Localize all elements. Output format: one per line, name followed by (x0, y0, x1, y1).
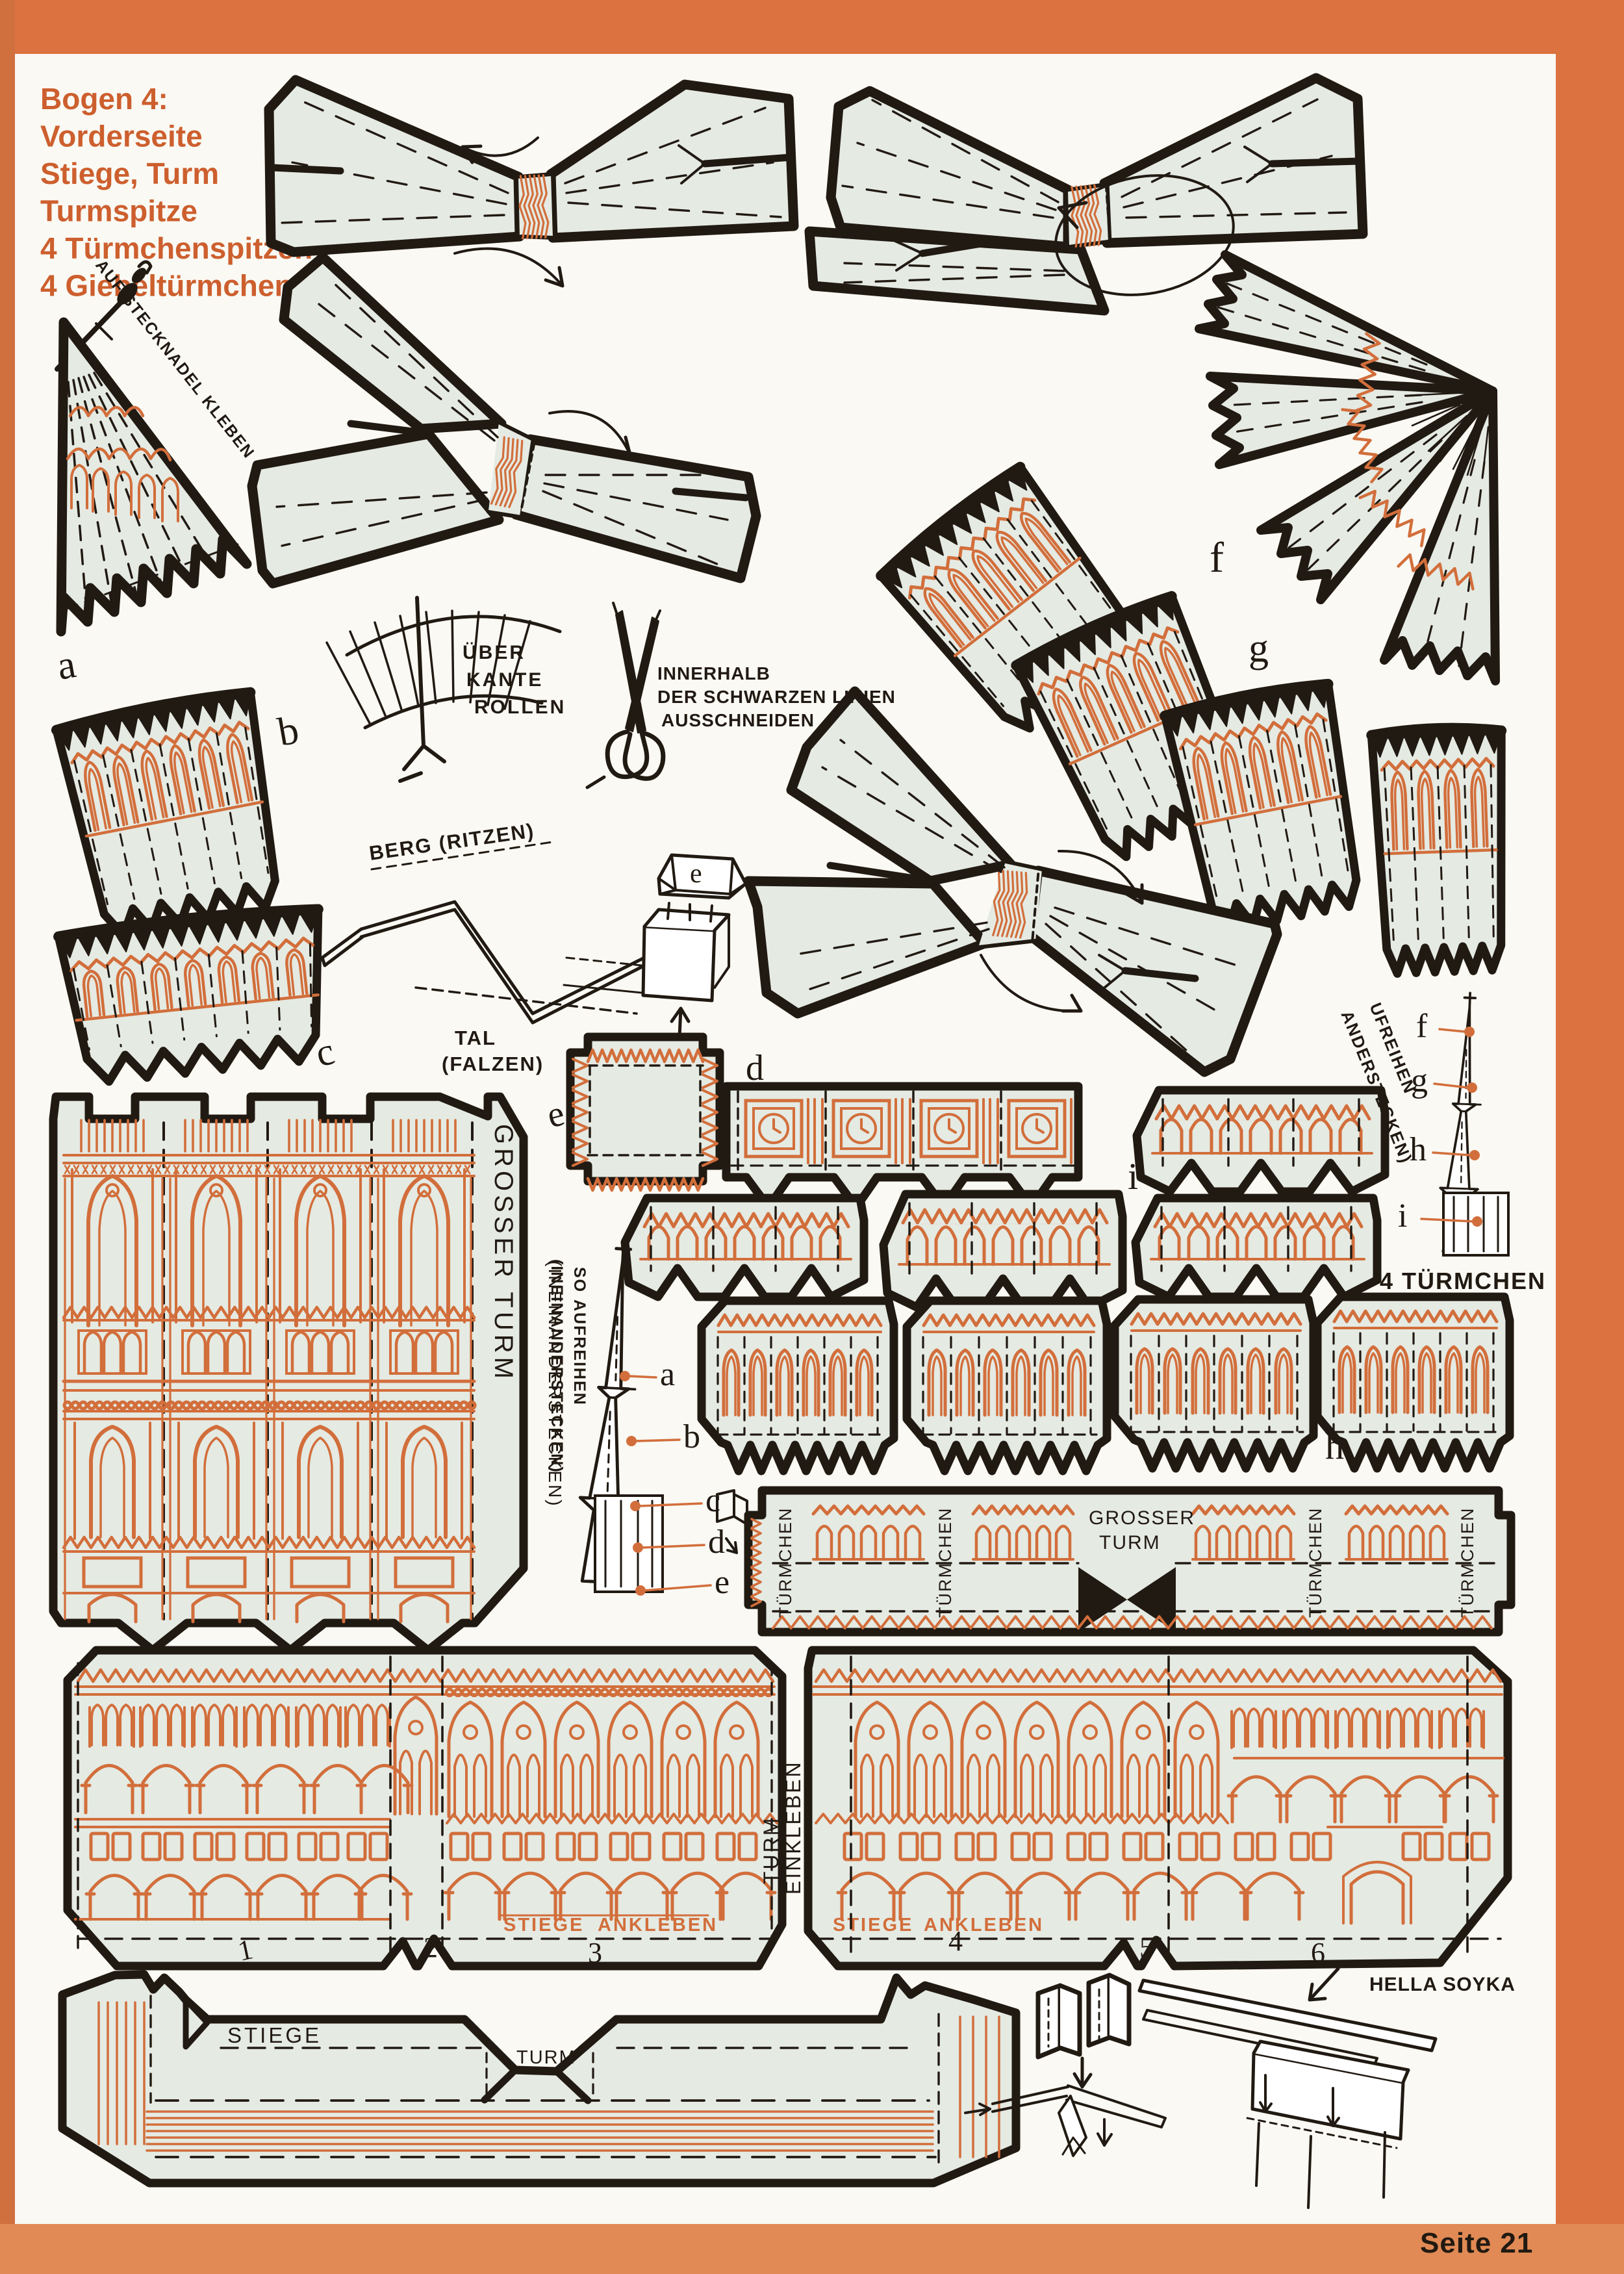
svg-text:AUSSCHNEIDEN: AUSSCHNEIDEN (661, 710, 815, 730)
svg-text:4 Giebeltürmchen: 4 Giebeltürmchen (40, 269, 293, 303)
svg-text:AUFREIHEN: AUFREIHEN (570, 1299, 589, 1406)
svg-text:4 TÜRMCHEN: 4 TÜRMCHEN (1380, 1268, 1546, 1294)
svg-text:STIEGE: STIEGE (833, 1915, 913, 1935)
svg-text:INNERHALB: INNERHALB (657, 663, 770, 683)
svg-text:ROLLEN: ROLLEN (474, 696, 566, 718)
svg-text:TÜRMCHEN: TÜRMCHEN (1458, 1507, 1477, 1618)
svg-text:b: b (683, 1418, 701, 1455)
svg-text:f: f (1416, 1008, 1428, 1045)
svg-text:ANKLEBEN: ANKLEBEN (924, 1915, 1044, 1935)
svg-text:g: g (1249, 626, 1269, 671)
svg-text:Stiege, Turm: Stiege, Turm (40, 157, 219, 190)
svg-text:KANTE: KANTE (466, 669, 543, 691)
svg-text:TÜRMCHEN: TÜRMCHEN (935, 1507, 955, 1618)
svg-text:HELLA SOYKA: HELLA SOYKA (1369, 1974, 1516, 1995)
svg-text:TÜRMCHEN: TÜRMCHEN (776, 1507, 795, 1618)
svg-text:STIEGE: STIEGE (227, 2023, 322, 2047)
svg-text:i: i (1128, 1155, 1139, 1197)
svg-text:Bogen 4:: Bogen 4: (40, 82, 168, 116)
svg-text:Vorderseite: Vorderseite (40, 120, 203, 153)
svg-text:TURM: TURM (759, 1817, 783, 1884)
svg-text:i: i (1398, 1197, 1408, 1234)
svg-text:GROSSER TURM: GROSSER TURM (489, 1124, 518, 1383)
svg-text:Seite 21: Seite 21 (1420, 2227, 1533, 2259)
svg-text:c: c (705, 1482, 721, 1519)
svg-text:e: e (715, 1564, 730, 1601)
svg-text:6: 6 (1311, 1937, 1326, 1969)
svg-text:EINKLEBEN: EINKLEBEN (781, 1760, 805, 1895)
svg-text:TAL: TAL (455, 1027, 496, 1049)
svg-text:DER SCHWARZEN LINIEN: DER SCHWARZEN LINIEN (657, 687, 896, 707)
svg-text:STIEGE: STIEGE (503, 1915, 584, 1935)
svg-text:2: 2 (424, 1932, 438, 1963)
svg-text:d: d (746, 1048, 765, 1088)
svg-text:e: e (690, 859, 703, 889)
svg-text:ANKLEBEN: ANKLEBEN (598, 1915, 718, 1935)
svg-text:TÜRMCHEN: TÜRMCHEN (1306, 1507, 1325, 1618)
svg-text:d: d (708, 1524, 726, 1561)
svg-text:h: h (1325, 1425, 1345, 1467)
svg-text:TURM: TURM (1099, 1532, 1161, 1553)
svg-text:TURM: TURM (516, 2047, 576, 2068)
svg-text:5: 5 (1139, 1932, 1154, 1963)
svg-text:ÜBER: ÜBER (463, 642, 526, 663)
svg-text:3: 3 (588, 1937, 603, 1969)
svg-text:(FALZEN): (FALZEN) (442, 1053, 544, 1075)
svg-text:a: a (660, 1356, 676, 1393)
svg-text:GROSSER: GROSSER (1089, 1507, 1195, 1529)
svg-text:4: 4 (948, 1925, 963, 1957)
svg-text:(INEINANDERSTECKEN): (INEINANDERSTECKEN) (545, 1260, 565, 1508)
svg-text:SO: SO (570, 1267, 589, 1293)
svg-text:f: f (1210, 534, 1224, 581)
svg-text:Turmspitze: Turmspitze (40, 194, 197, 228)
